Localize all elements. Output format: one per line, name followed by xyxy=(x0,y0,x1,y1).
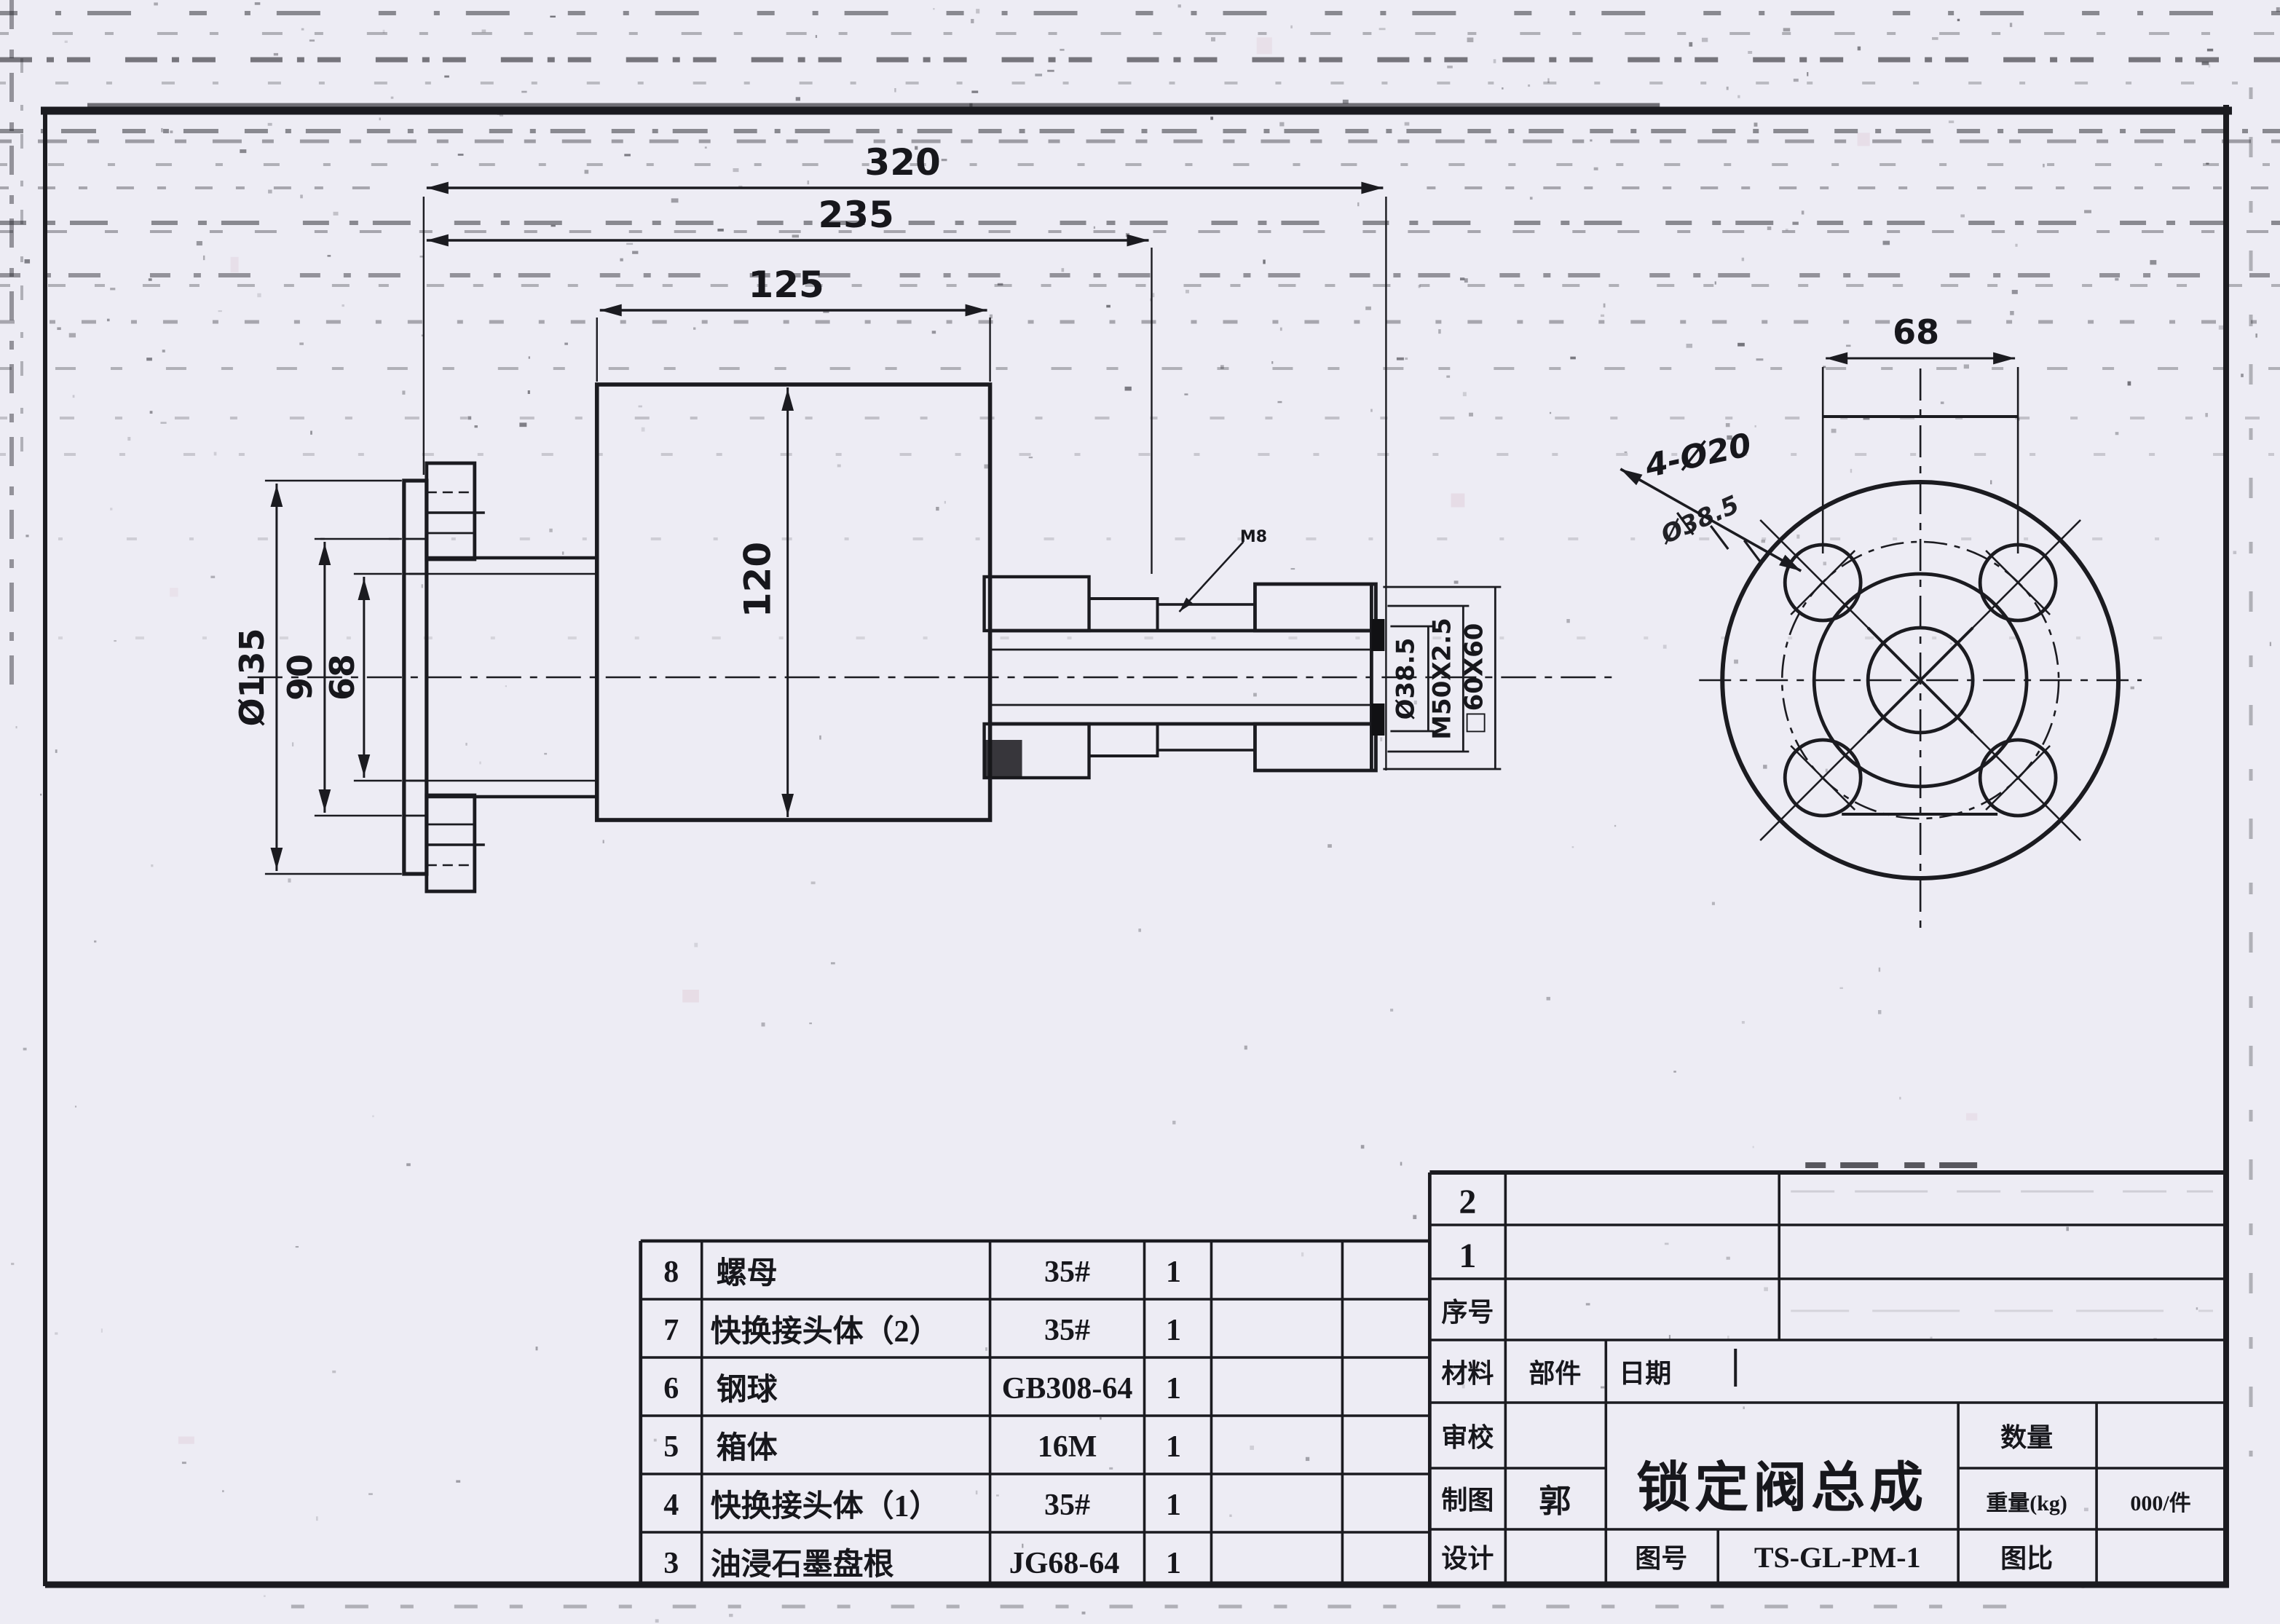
part-material: JG68-64 xyxy=(1009,1547,1120,1580)
tb-date-label: 日期 xyxy=(1619,1359,1671,1388)
dim-square: □60X60 xyxy=(1459,623,1488,735)
table-row: 4 快换接头体（1） 35# 1 xyxy=(663,1489,1181,1524)
tb-row1: 1 xyxy=(1459,1237,1476,1275)
part-seq: 7 xyxy=(663,1314,679,1347)
stem-end-face-top xyxy=(1371,619,1384,651)
title-block: 2 1 序号 材料 部件 日期 审校 制图 郭 设计 锁定阀总成 数量 重量(k… xyxy=(1429,1172,2226,1585)
part-qty: 1 xyxy=(1166,1256,1181,1289)
part-qty: 1 xyxy=(1166,1489,1181,1522)
parts-table: 8 螺母 35# 1 7 快换接头体（2） 35# 1 6 钢球 GB308-6… xyxy=(641,1241,1430,1585)
dim-thread: M50X2.5 xyxy=(1427,618,1456,740)
table-row: 7 快换接头体（2） 35# 1 xyxy=(663,1314,1181,1349)
stem-wall-bottom xyxy=(1157,724,1255,750)
part-name: 箱体 xyxy=(717,1431,778,1465)
table-row: 3 油浸石墨盘根 JG68-64 1 xyxy=(663,1547,1181,1582)
tb-check-label: 审校 xyxy=(1441,1423,1494,1452)
tb-draft-value: 郭 xyxy=(1539,1483,1571,1519)
drawing-title: 锁定阀总成 xyxy=(1636,1459,1928,1518)
valve-body xyxy=(597,385,990,820)
dim-120: 120 xyxy=(737,542,779,618)
part-material: 35# xyxy=(1044,1256,1090,1289)
part-qty: 1 xyxy=(1166,1430,1181,1464)
note-m8: M8 xyxy=(1240,528,1267,546)
dim-68-flange: 68 xyxy=(1893,312,1939,352)
stem-dimension-callouts: Ø38.5 M50X2.5 □60X60 xyxy=(1383,587,1501,769)
table-row: 6 钢球 GB308-64 1 xyxy=(663,1372,1181,1407)
dim-235: 235 xyxy=(818,194,894,236)
part-seq: 5 xyxy=(663,1430,679,1464)
table-row: 8 螺母 35# 1 xyxy=(663,1256,1181,1290)
part-seq: 8 xyxy=(663,1256,679,1289)
flange-bolt-top xyxy=(427,463,475,559)
nut-section-bottom xyxy=(1255,724,1376,770)
tb-drawing-no-label: 图号 xyxy=(1635,1544,1687,1573)
tb-scale-label: 图比 xyxy=(2000,1544,2053,1573)
part-material: 35# xyxy=(1044,1489,1090,1522)
tb-qty-label: 数量 xyxy=(2000,1423,2053,1452)
tb-material-label: 材料 xyxy=(1441,1359,1494,1388)
dim-dia135: Ø135 xyxy=(232,628,272,726)
part-name: 油浸石墨盘根 xyxy=(711,1548,894,1582)
note-bolt-holes: 4-Ø20 xyxy=(1641,427,1755,486)
stem-end-face-bottom xyxy=(1371,703,1384,736)
front-section-view: 120 M8 Ø38.5 M50X2.5 xyxy=(597,385,1502,820)
part-seq: 4 xyxy=(663,1489,679,1522)
flange-circular-view: 68 4-Ø20 Ø38.5 xyxy=(1617,312,2142,928)
part-qty: 1 xyxy=(1166,1314,1181,1347)
part-material: 35# xyxy=(1044,1314,1090,1347)
tb-design-label: 设计 xyxy=(1441,1544,1494,1573)
stem-wall-top xyxy=(1157,604,1255,631)
dim-125: 125 xyxy=(748,264,824,306)
part-qty: 1 xyxy=(1166,1547,1181,1580)
part-name: 快换接头体（1） xyxy=(711,1489,940,1524)
dim-68-side: 68 xyxy=(323,654,362,701)
tb-weight-label: 重量(kg) xyxy=(1986,1491,2067,1515)
part-material: 16M xyxy=(1038,1430,1097,1464)
part-name: 钢球 xyxy=(717,1373,778,1407)
flange-bolt-bottom xyxy=(427,795,475,891)
part-name: 快换接头体（2） xyxy=(711,1314,940,1349)
tb-seq-label: 序号 xyxy=(1441,1298,1494,1327)
tb-drawing-no: TS-GL-PM-1 xyxy=(1754,1541,1921,1574)
part-material: GB308-64 xyxy=(1002,1372,1133,1406)
drawing-canvas: 320 235 125 Ø135 xyxy=(0,0,2280,1624)
tb-row2: 2 xyxy=(1459,1183,1476,1221)
scan-smudge xyxy=(985,740,1022,778)
part-qty: 1 xyxy=(1166,1372,1181,1406)
note-crossed-out: Ø38.5 xyxy=(1655,490,1743,551)
tb-draft-label: 制图 xyxy=(1441,1486,1494,1515)
tb-part-label: 部件 xyxy=(1528,1359,1581,1388)
part-seq: 6 xyxy=(663,1372,679,1406)
dim-320: 320 xyxy=(864,141,940,184)
part-name: 螺母 xyxy=(717,1256,778,1290)
part-seq: 3 xyxy=(663,1547,679,1580)
dim-bore: Ø38.5 xyxy=(1391,638,1420,720)
scanned-drawing-page: 320 235 125 Ø135 xyxy=(0,0,2280,1624)
dim-90: 90 xyxy=(280,654,320,701)
gland-section-top xyxy=(985,577,1089,631)
tb-weight-value: 000/件 xyxy=(2130,1491,2190,1515)
nut-section-top xyxy=(1255,584,1376,631)
table-row: 5 箱体 16M 1 xyxy=(663,1430,1181,1465)
